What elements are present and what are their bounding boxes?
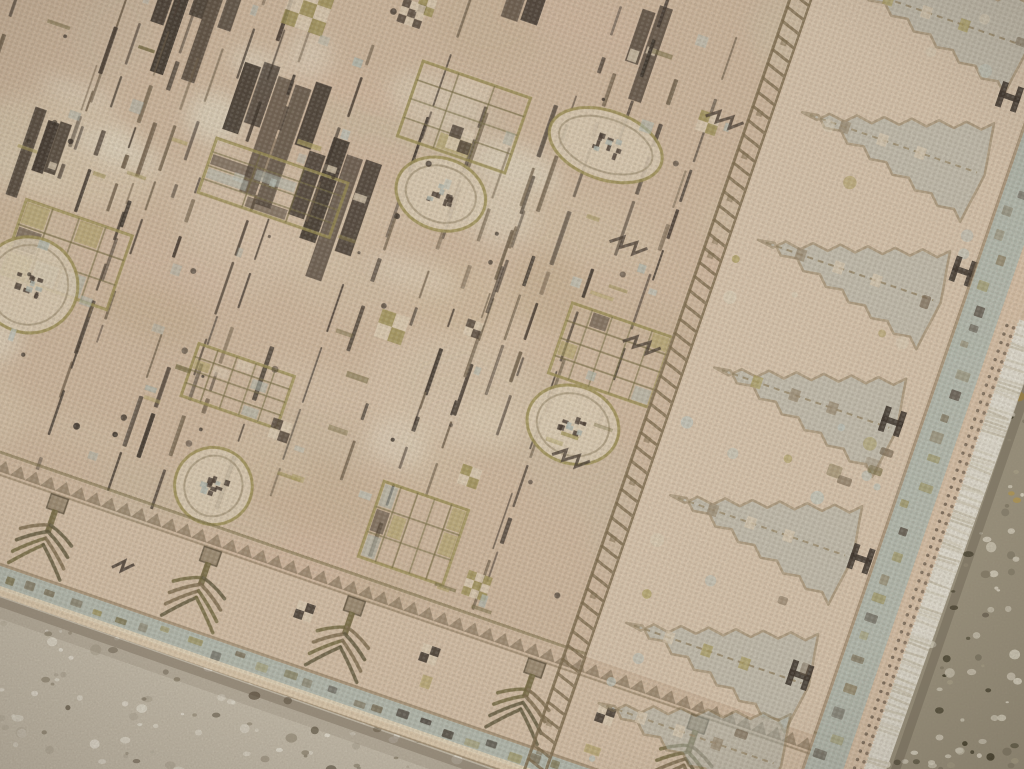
rug-photo-canvas	[0, 0, 1024, 769]
photo-of-antique-rug-on-terrazzo-floor	[0, 0, 1024, 769]
photo-grain-vignette	[0, 0, 1024, 769]
